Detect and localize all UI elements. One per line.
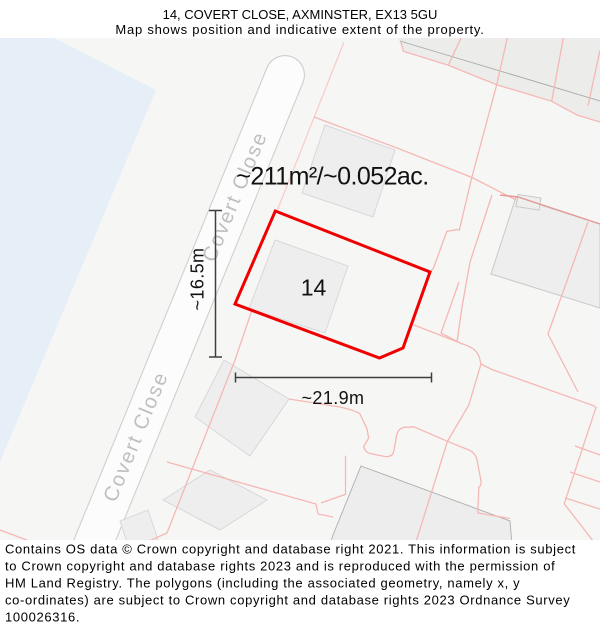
- svg-text:~16.5m: ~16.5m: [187, 248, 207, 311]
- svg-text:~21.9m: ~21.9m: [302, 388, 365, 408]
- svg-text:14, COVERT CLOSE, AXMINSTER, E: 14, COVERT CLOSE, AXMINSTER, EX13 5GU: [163, 7, 438, 22]
- svg-text:Contains OS data © Crown copyr: Contains OS data © Crown copyright and d…: [5, 542, 576, 557]
- svg-text:HM Land Registry. The polygons: HM Land Registry. The polygons (includin…: [5, 576, 520, 591]
- svg-text:100026316.: 100026316.: [5, 610, 80, 625]
- svg-text:to Crown copyright and databas: to Crown copyright and database rights 2…: [5, 559, 555, 574]
- svg-text:Map shows position and indicat: Map shows position and indicative extent…: [115, 22, 484, 37]
- svg-text:~211m²/~0.052ac.: ~211m²/~0.052ac.: [236, 163, 428, 191]
- svg-text:14: 14: [301, 275, 327, 301]
- svg-text:co-ordinates) are subject to C: co-ordinates) are subject to Crown copyr…: [5, 593, 570, 608]
